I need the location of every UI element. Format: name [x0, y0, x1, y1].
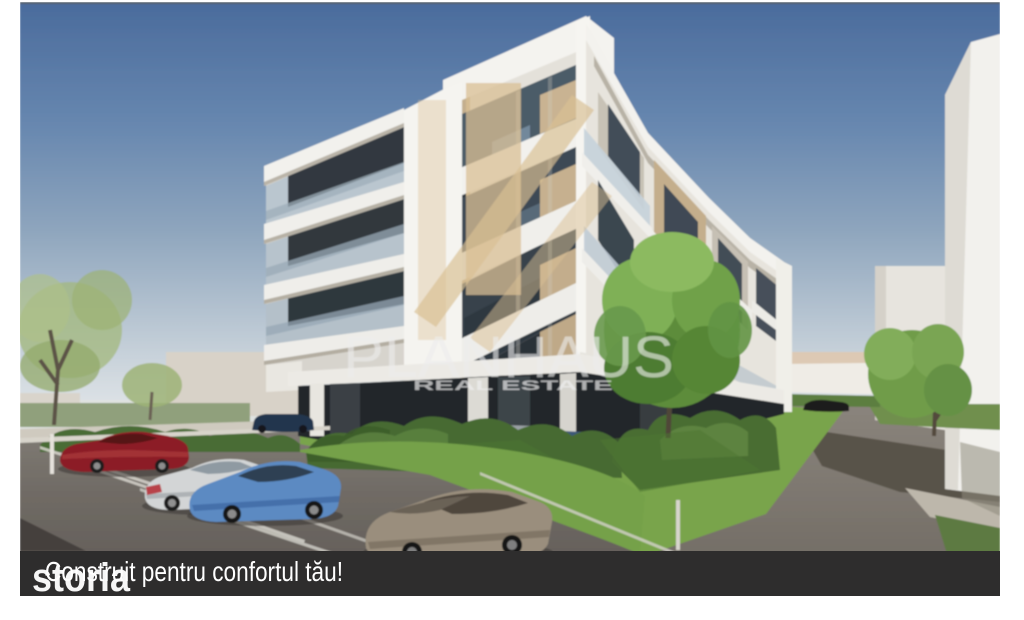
svg-text:storia: storia [32, 556, 131, 600]
svg-text:REAL ESTATE: REAL ESTATE [413, 377, 613, 393]
